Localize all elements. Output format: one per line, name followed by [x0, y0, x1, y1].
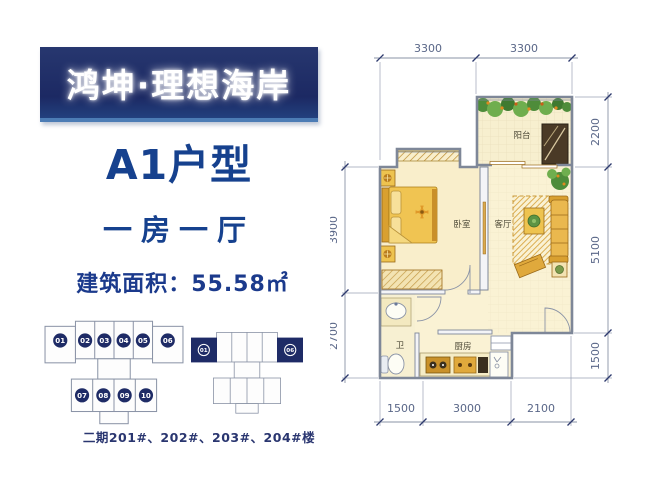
dim-top-2: 3300 [510, 42, 538, 55]
dim-bottom-3: 2100 [527, 402, 555, 415]
building-b-outline [213, 332, 280, 413]
fridge-icon [491, 336, 511, 350]
brand-banner: 鸿坤·理想海岸 [40, 47, 318, 122]
balcony-cabinet-icon [542, 124, 568, 164]
dim-top-1: 3300 [414, 42, 442, 55]
unit-number: 08 [98, 391, 108, 400]
highlighted-unit-number: 06 [286, 348, 294, 354]
kitchen-sink-icon [490, 352, 508, 377]
unit-number: 02 [80, 336, 90, 345]
unit-number: 09 [120, 391, 130, 400]
room-label-bedroom: 卧室 [453, 219, 471, 230]
sofa-icon [549, 196, 568, 263]
dim-right-3: 1500 [589, 342, 602, 370]
unit-number: 07 [77, 391, 87, 400]
unit-type-title: A1户型 [40, 131, 318, 191]
balcony-slider-icon [490, 162, 525, 165]
unit-number: 10 [141, 391, 151, 400]
unit-number: 06 [163, 336, 173, 345]
unit-number: 01 [55, 336, 65, 345]
side-table-icon [552, 262, 567, 277]
dim-bottom-2: 3000 [453, 402, 481, 415]
coffee-table-icon [524, 208, 544, 234]
site-plan-building-b: 01 06 [191, 320, 303, 428]
brochure-page: 鸿坤·理想海岸 A1户型 一房一厅 建筑面积：55.58㎡ [0, 0, 650, 480]
site-plan-building-a: 01 02 03 04 05 06 07 08 09 10 [43, 318, 185, 430]
unit-rooms-title: 一房一厅 [40, 207, 318, 249]
wardrobe-hatch [382, 270, 442, 289]
dim-left-1: 3900 [330, 216, 340, 244]
toilet-icon [388, 354, 404, 374]
room-label-balcony: 阳台 [513, 130, 530, 141]
highlighted-unit-number: 01 [200, 348, 208, 354]
unit-number: 05 [138, 336, 148, 345]
sliding-door-icon [483, 202, 486, 254]
floor-plan: 阳台 卧室 客厅 卫 厨房 [330, 0, 650, 480]
room-label-kitchen: 厨房 [454, 341, 471, 352]
balcony-slider-icon [522, 165, 557, 168]
brand-title: 鸿坤·理想海岸 [67, 59, 292, 107]
dim-left-2: 2700 [330, 322, 340, 350]
dim-right-1: 2200 [589, 118, 602, 146]
phase-buildings-note: 二期201#、202#、203#、204#楼 [60, 427, 338, 446]
dim-bottom-1: 1500 [387, 402, 415, 415]
dim-right-2: 5100 [589, 236, 602, 264]
room-label-bath: 卫 [396, 341, 405, 351]
unit-number: 04 [119, 336, 129, 345]
room-label-living: 客厅 [494, 219, 512, 230]
stove-icon [426, 357, 450, 373]
unit-area-label: 建筑面积：55.58㎡ [40, 266, 325, 298]
bay-window-sill [398, 151, 459, 161]
unit-number: 03 [99, 336, 109, 345]
